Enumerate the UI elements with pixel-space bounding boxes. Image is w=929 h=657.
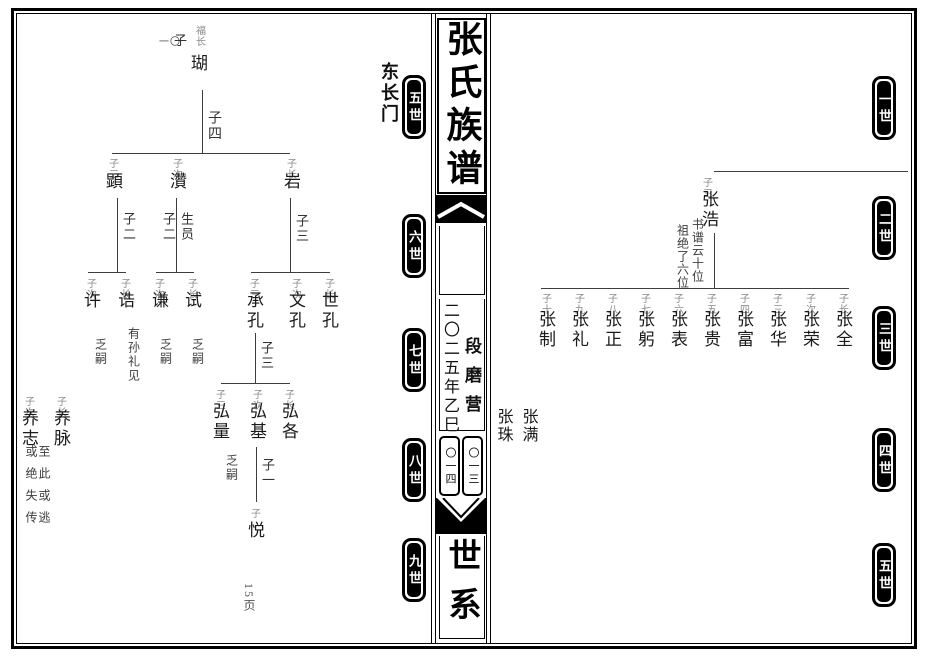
fishtail-bottom-icon [435,498,487,534]
person-name: 弘各 [279,402,297,442]
person-name: 张珠 [495,408,512,444]
generation-badge-label: 四世 [877,433,891,487]
person-name: 张躬 [635,310,653,350]
genealogy-note: 祖绝了六位 [676,224,689,289]
generation-badge: 六世 [402,214,426,278]
tree-line-vertical [714,233,715,288]
genealogy-page: 张氏族谱 二〇二五年乙巳 段磨营 〇一四 〇一三 世系 东长门 一〇 子 福长 … [0,0,929,657]
person-name: 灒 [167,172,185,192]
spine-section-title: 世系 [444,538,480,636]
person-name: 顕 [103,172,121,192]
spine-page-box-right: 〇一三 [462,436,483,496]
tree-line-horizontal [88,272,126,273]
person-name: 张全 [833,310,851,350]
sons-count-label: 子三 [294,214,308,244]
tree-line-vertical [117,198,118,272]
generation-badge: 二世 [872,196,896,260]
generation-badge-label: 三世 [877,311,891,365]
tree-line-horizontal [156,272,194,273]
generation-badge: 七世 [402,328,426,392]
sons-count-label: 子二 [121,212,135,242]
degree-label: 生员 [179,212,193,242]
tree-line-horizontal [221,383,290,384]
spine-rule [431,14,432,644]
spine-rule [435,14,436,644]
person-name: 张表 [668,310,686,350]
tree-line-vertical [176,198,177,272]
person-name: 谦 [149,291,167,311]
person-name: 瑚 [188,54,206,74]
generation-badge-label: 二世 [877,201,891,255]
sons-count-label: 子三 [259,341,273,371]
tree-line-horizontal [714,171,908,172]
book-title: 张氏族谱 [442,20,482,192]
generation-badge: 一世 [872,76,896,140]
person-name: 世孔 [319,291,337,331]
genealogy-note: 书谱云十位 [691,218,704,283]
generation-badge-label: 七世 [407,333,421,387]
tree-line-vertical [255,333,256,383]
generation-badge-label: 五世 [407,80,421,134]
person-name: 诰 [115,291,133,311]
tree-line-vertical [290,198,291,272]
generation-badge: 八世 [402,438,426,502]
generation-badge: 四世 [872,428,896,492]
person-name: 张荣 [800,310,818,350]
relation-label: 子 [174,30,187,49]
lineage-note: 福长 [194,25,205,47]
person-name: 试 [182,291,200,311]
lineage-lost-note: 至此或逃或绝失传 [20,445,50,537]
person-name: 张礼 [569,310,587,350]
heir-note: 有孙礼见 [127,327,140,383]
tree-line-horizontal [112,153,290,154]
generation-badge: 五世 [872,543,896,607]
spine-section-box: 世系 [439,536,485,639]
generation-badge-label: 六世 [407,219,421,273]
heir-note: 乏嗣 [159,338,172,366]
tree-line-vertical [256,447,257,502]
heir-note: 乏嗣 [94,338,107,366]
tree-line-horizontal [541,288,849,289]
person-name: 养志 [19,409,37,449]
person-name: 承孔 [244,291,262,331]
generation-badge-label: 一世 [877,81,891,135]
spine-empty-box [439,226,485,295]
tree-line-vertical [202,90,203,153]
person-name: 弘量 [210,402,228,442]
tree-line-horizontal [251,272,330,273]
person-name: 悦 [245,521,263,541]
spine-rule [490,14,491,644]
person-name: 张满 [520,408,537,444]
generation-badge-label: 九世 [407,543,421,597]
spine-place: 段磨营 [462,337,481,424]
spine-page-box-left: 〇一四 [439,436,460,496]
person-name: 弘基 [247,402,265,442]
heir-note: 乏嗣 [191,338,204,366]
branch-label: 东长门 [379,62,399,125]
sons-count-label: 子一 [260,458,274,488]
generation-badge-label: 五世 [877,548,891,602]
heir-note: 乏嗣 [225,454,238,482]
person-name: 张贵 [701,310,719,350]
person-name: 文孔 [286,291,304,331]
spine-rule [486,14,487,644]
person-name: 张富 [734,310,752,350]
relation-label: 子 [249,508,260,519]
generation-badge: 三世 [872,306,896,370]
person-name: 许 [81,291,99,311]
page-number: 15页 [242,583,255,613]
person-name: 张正 [602,310,620,350]
generation-badge: 九世 [402,538,426,602]
person-name: 张华 [767,310,785,350]
generation-badge: 五世 [402,75,426,139]
fishtail-top-icon [435,195,487,223]
person-name: 养脉 [51,409,69,449]
spine-title-box: 张氏族谱 [437,18,486,194]
person-name: 岩 [281,172,299,192]
spine-page-number-left: 〇一四 [443,447,456,486]
person-name: 张制 [536,310,554,350]
generation-badge-label: 八世 [407,443,421,497]
spine-page-number-right: 〇一三 [466,447,479,486]
sons-count-label: 子四 [206,110,220,142]
spine-year: 二〇二五年乙巳 [441,302,458,435]
sons-count-label: 子二 [161,212,175,242]
